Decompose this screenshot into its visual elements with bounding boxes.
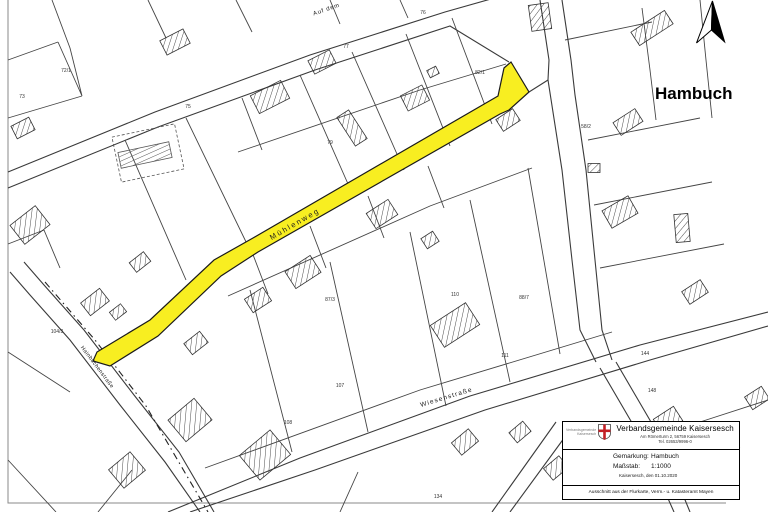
legend-footer: Ausschnitt aus der Flurkarte, Verm.- u. … [563, 486, 739, 499]
buildings [10, 3, 768, 488]
town-label: Hambuch [655, 84, 732, 103]
parcel-number: 134 [434, 494, 443, 500]
parcel-number: 82/1 [475, 70, 485, 76]
parcel-number: 75 [185, 104, 191, 110]
parcel-number: 73 [19, 94, 25, 100]
legend-header: Verbandsgemeinde Kaisersesch Verbandsgem… [563, 422, 739, 449]
parcel-number: 58/2 [581, 124, 591, 130]
field-gemarkung-label: Gemarkung: [613, 452, 651, 462]
legend-date: Kaisersesch, den 01.10.2020 [613, 473, 735, 478]
parcel-number: 107 [336, 383, 345, 389]
parcel-number: 108 [284, 420, 293, 426]
legend-title-wrap: Verbandsgemeinde Kaisersesch Am Römertur… [614, 424, 736, 444]
parcel-number: 79 [327, 140, 333, 146]
parcel-number: 111 [501, 353, 509, 359]
coat-of-arms-icon [598, 424, 611, 440]
parcel-number: 77 [343, 44, 349, 50]
parcel-number: 76 [420, 10, 426, 16]
field-gemarkung-value: Hambuch [651, 452, 679, 462]
street-label: Mühlenweg [268, 206, 321, 242]
authority-phone: Tel. 02653/9996-0 [614, 439, 736, 444]
field-massstab-label: Maßstab: [613, 462, 651, 472]
vg-kaisersesch-logo: Verbandsgemeinde Kaisersesch [566, 424, 611, 440]
field-massstab: Maßstab: 1:1000 [613, 462, 735, 472]
parcel-number: 72/1 [61, 68, 71, 74]
parcel-number: 88/7 [519, 295, 529, 301]
parcel-numbers: 76777572/1737982/158/287/388/71101111081… [19, 10, 656, 500]
north-arrow-icon [696, 0, 727, 45]
parcel-number: 110 [451, 292, 459, 298]
field-gemarkung: Gemarkung: Hambuch [613, 452, 735, 462]
parcel-number: 144 [641, 351, 650, 357]
authority-name: Verbandsgemeinde Kaisersesch [614, 424, 736, 433]
legend-fields: Gemarkung: Hambuch Maßstab: 1:1000 Kaise… [563, 450, 739, 485]
parcel-number: 148 [648, 388, 657, 394]
parcel-number: 87/3 [325, 297, 335, 303]
greenhouse-building [118, 142, 172, 168]
logo-caption: Verbandsgemeinde Kaisersesch [566, 428, 596, 436]
parcel-number: 104/3 [51, 329, 64, 335]
logo-caption-line2: Kaisersesch [566, 432, 596, 436]
field-massstab-value: 1:1000 [651, 462, 671, 472]
map-legend-box: Verbandsgemeinde Kaisersesch Verbandsgem… [562, 421, 740, 500]
cadastral-map-page: Hambuch MühlenwegWiesenstraßeHainbüchens… [0, 0, 768, 512]
